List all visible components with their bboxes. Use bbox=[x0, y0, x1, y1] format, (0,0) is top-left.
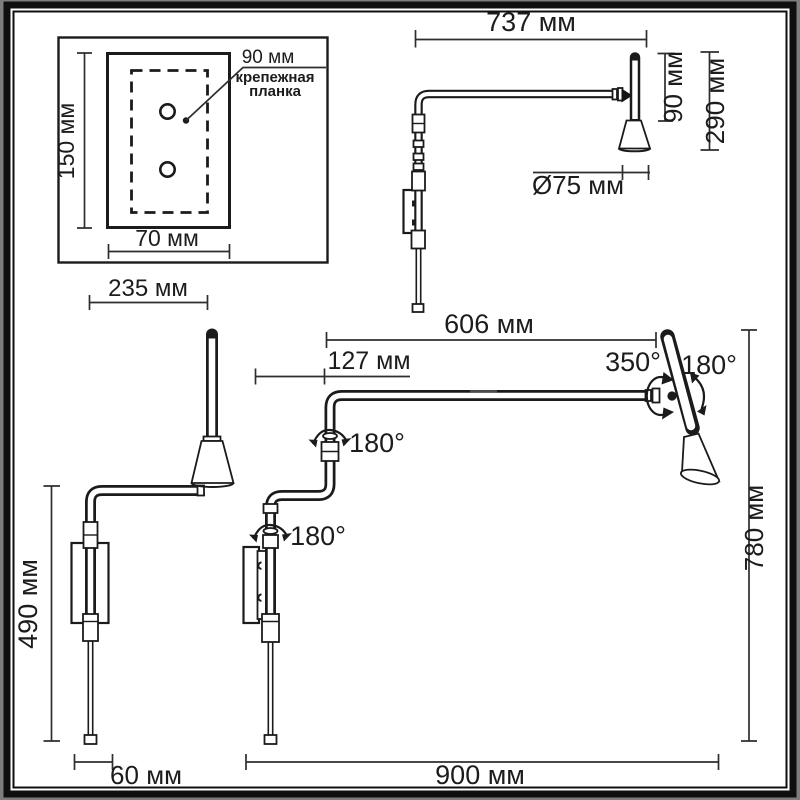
mounting-plate-outline bbox=[108, 54, 230, 228]
side-rod-ring-2 bbox=[414, 154, 424, 161]
arm-swivel-label: 350° bbox=[605, 347, 661, 377]
base-swivel-collar bbox=[263, 535, 278, 548]
max-height-label: 780 мм bbox=[739, 485, 769, 571]
head-stem-label: 90 мм bbox=[658, 51, 688, 123]
wall-depth-label: 60 мм bbox=[110, 760, 182, 790]
dim-head-total: 290 мм bbox=[700, 52, 730, 150]
dim-head-stem: 90 мм bbox=[658, 51, 689, 123]
arm-projection-label: 235 мм bbox=[108, 275, 188, 302]
hole-spacing-label: 90 мм bbox=[242, 47, 295, 68]
extended-rod-foot bbox=[265, 735, 277, 744]
arm-end-ferrule-2 bbox=[653, 389, 660, 403]
side-rod-ring-3 bbox=[414, 164, 424, 171]
wall-lamp-dimension-diagram: 90 мм крепежная планка 150 мм 70 мм 737 … bbox=[0, 0, 800, 800]
shade-diameter-label: Ø75 мм bbox=[532, 170, 624, 200]
technical-drawing-page: 90 мм крепежная планка 150 мм 70 мм 737 … bbox=[0, 0, 800, 800]
head-tilt-label: 180° bbox=[681, 350, 737, 380]
front-rod-foot bbox=[85, 735, 97, 744]
arm-length-label: 737 мм bbox=[486, 7, 576, 37]
side-rod-ring-1 bbox=[414, 141, 424, 148]
side-arm-ferrule-1 bbox=[613, 89, 618, 100]
base-rod-sleeve bbox=[264, 504, 278, 513]
screw-hole-bottom bbox=[160, 162, 174, 176]
head-total-label: 290 мм bbox=[700, 58, 730, 144]
wall-arm-offset-label: 127 мм bbox=[327, 347, 410, 375]
plate-width-label: 70 мм bbox=[135, 225, 199, 251]
head-pivot bbox=[667, 391, 676, 400]
front-rod-collar-2 bbox=[83, 614, 98, 641]
elbow-swivel-label: 180° bbox=[349, 428, 405, 458]
side-rod-collar-2 bbox=[412, 172, 425, 191]
base-swivel-label: 180° bbox=[290, 521, 346, 551]
max-width-label: 900 мм bbox=[435, 760, 525, 790]
side-rod-collar-3 bbox=[412, 231, 426, 249]
plate-height-label: 150 мм bbox=[53, 103, 79, 179]
side-rod-foot bbox=[413, 304, 424, 312]
extended-rod-collar bbox=[262, 614, 279, 642]
body-height-label: 490 мм bbox=[13, 559, 43, 649]
arm-reach-label: 606 мм bbox=[444, 309, 534, 339]
mounting-bar-label-line2: планка bbox=[249, 83, 301, 100]
screw-hole-top bbox=[160, 104, 174, 118]
mounting-plate-panel: 90 мм крепежная планка 150 мм 70 мм bbox=[53, 38, 328, 263]
